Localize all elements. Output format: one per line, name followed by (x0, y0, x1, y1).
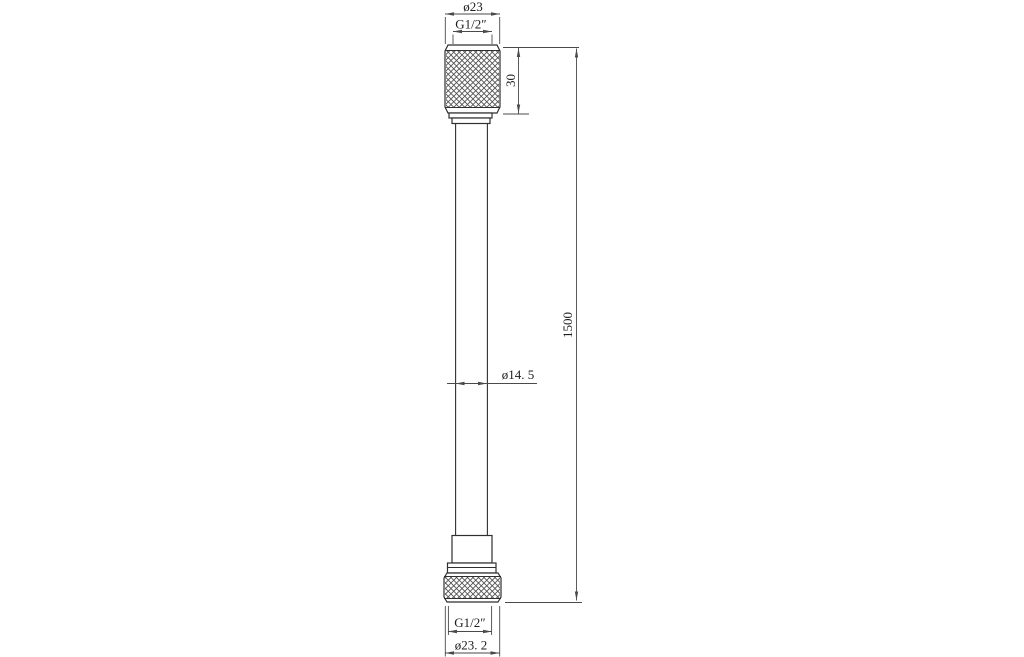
arrowhead-left-icon (445, 12, 454, 15)
top-nut-knurl-texture (446, 50, 499, 108)
dim-nut-height-label: 30 (503, 74, 518, 87)
bottom-flange (448, 563, 497, 573)
arrowhead-up-icon (517, 48, 520, 57)
arrowhead-left-icon (456, 382, 465, 385)
dim-overall-length: 1500 (505, 49, 582, 603)
arrowhead-right-icon (478, 382, 487, 385)
dim-hose-diameter-label: ø14. 5 (502, 367, 535, 382)
arrowhead-right-icon (483, 630, 492, 633)
top-collar (449, 113, 492, 124)
bottom-nut (444, 573, 501, 602)
arrowhead-left-icon (445, 651, 454, 654)
arrowhead-down-icon (517, 105, 520, 114)
dim-top-thread-label: G1/2″ (455, 17, 486, 32)
dim-top-thread-lines (453, 32, 492, 45)
dim-bottom-thread: G1/2″ (448, 606, 492, 635)
dim-hose-diameter: ø14. 5 (447, 367, 537, 385)
technical-drawing: ø23 G1/2″ 30 1500 ø14. 5 G1/2″ (0, 0, 1024, 657)
dim-nut-height: 30 (503, 48, 579, 115)
bottom-ferrule-body (452, 536, 492, 564)
arrowhead-right-icon (491, 12, 500, 15)
dim-bottom-outer-diameter-label: ø23. 2 (455, 638, 488, 653)
top-collar-step-2 (452, 118, 490, 124)
hose-tube-walls (456, 124, 488, 536)
dim-top-thread: G1/2″ (453, 17, 492, 45)
bottom-nut-knurl-texture (445, 577, 500, 599)
arrowhead-up-icon (575, 49, 578, 58)
hose-tube (456, 124, 488, 536)
bottom-ferrule (452, 536, 492, 564)
top-nut (445, 45, 500, 113)
dim-overall-length-label: 1500 (560, 312, 575, 338)
arrowhead-left-icon (448, 630, 457, 633)
dim-bottom-thread-label: G1/2″ (454, 615, 485, 630)
top-collar-step-1 (449, 113, 492, 118)
dim-top-outer-diameter-label: ø23 (463, 0, 483, 14)
drawing-svg: ø23 G1/2″ 30 1500 ø14. 5 G1/2″ (0, 0, 1024, 657)
arrowhead-right-icon (491, 651, 500, 654)
arrowhead-down-icon (575, 592, 578, 601)
